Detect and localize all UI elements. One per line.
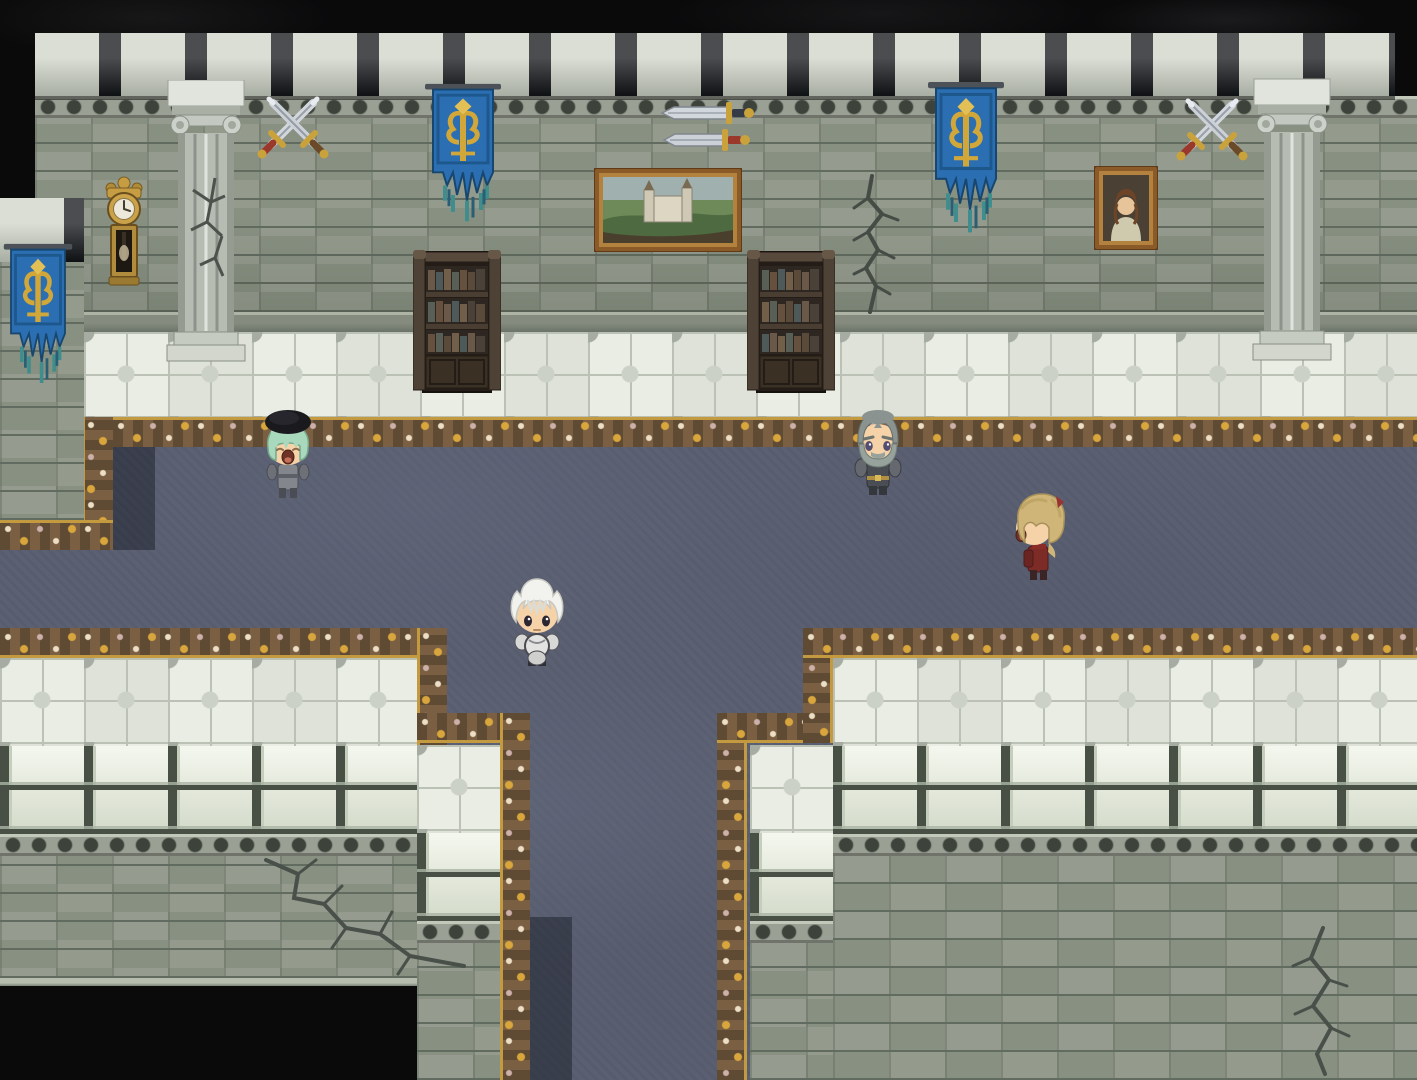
lower-right-step-tiles [750,745,833,833]
banner-buttress [2,242,74,404]
column-cracked [165,80,247,367]
wall-crack-lower-left [258,842,473,982]
lower-right-step-captop [750,833,833,921]
bookshelf-left[interactable] [413,246,501,398]
banner-left [423,82,503,242]
crossed-swords-right [1174,95,1250,165]
carpet-border-corridor-right [717,713,747,1080]
lower-right-step-corbels [750,921,833,943]
npc-bard[interactable] [255,402,321,504]
void-south-west [0,986,417,1080]
bookshelf-right[interactable] [747,246,835,398]
painting-landscape [594,168,742,252]
mounted-swords-pair [658,98,758,156]
lower-right-block-tiles [833,658,1417,746]
lower-left-block-tiles [0,658,417,746]
npc-noble[interactable] [1004,482,1070,586]
banner-right [926,80,1006,255]
wall-shadow-corridor [530,917,572,1080]
carpet-border-right-block-top [803,628,1417,658]
game-viewport[interactable] [0,0,1417,1080]
painting-portrait [1094,166,1158,250]
carpet-border-buttress-bottom [0,520,113,550]
wall-shadow-buttress [113,447,155,550]
lower-left-block-captop [0,746,417,834]
wall-crack-lower-right [1253,922,1388,1077]
carpet-corridor-horizontal[interactable] [0,417,1417,662]
wall-crack-upper [842,170,918,316]
npc-old-knight[interactable] [845,398,911,500]
player-hero[interactable] [504,570,570,672]
column-intact [1251,78,1333,367]
lower-right-block-captop [833,746,1417,834]
lower-right-block-corbels [833,834,1417,856]
crossed-swords-left [255,93,331,163]
lower-left-step-tiles [417,745,500,833]
carpet-border-left-block-top [0,628,447,658]
lower-right-step-wall [750,943,833,1080]
carpet-border-corridor-left [500,713,530,1080]
grandfather-clock[interactable] [97,175,151,293]
